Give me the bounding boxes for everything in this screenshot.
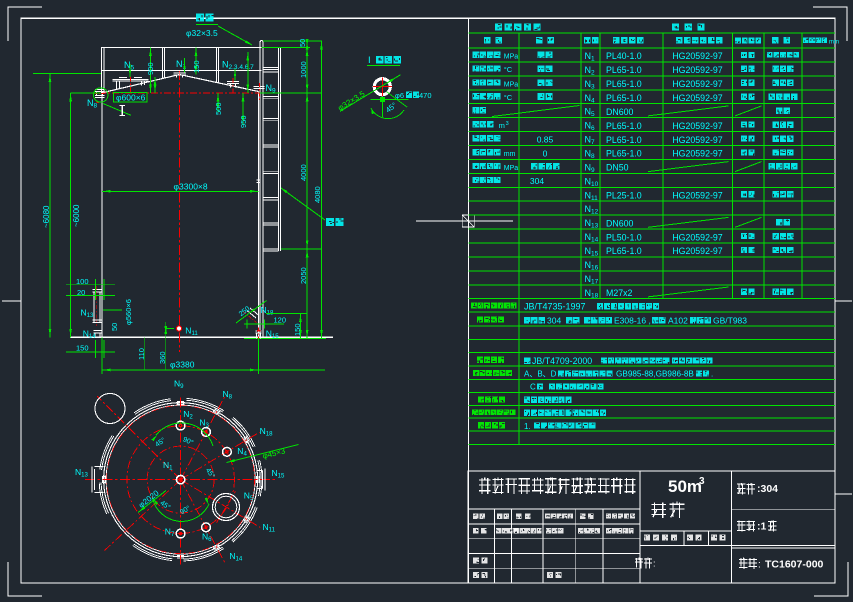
svg-text:3: 3 bbox=[699, 476, 705, 487]
svg-text:50m: 50m bbox=[668, 477, 702, 496]
svg-text:A102: A102 bbox=[668, 316, 688, 326]
svg-text:mm: mm bbox=[504, 151, 516, 158]
svg-text:0.85: 0.85 bbox=[537, 134, 554, 144]
svg-text:HG20592-97: HG20592-97 bbox=[672, 135, 722, 145]
svg-text:mm: mm bbox=[829, 40, 839, 46]
svg-text:4080: 4080 bbox=[313, 186, 322, 203]
svg-text:DN600: DN600 bbox=[606, 107, 633, 117]
svg-text:m: m bbox=[499, 121, 505, 130]
svg-text:110: 110 bbox=[137, 348, 146, 360]
svg-text::1: :1 bbox=[757, 521, 766, 533]
svg-text:4000: 4000 bbox=[299, 164, 308, 181]
svg-text:470: 470 bbox=[419, 91, 432, 100]
svg-text:1000: 1000 bbox=[299, 61, 308, 78]
svg-text:φ32×3.5: φ32×3.5 bbox=[186, 28, 218, 38]
svg-text:GB985-88,GB986-8B: GB985-88,GB986-8B bbox=[616, 370, 694, 379]
svg-text:150: 150 bbox=[293, 323, 302, 336]
svg-text:HG20592-97: HG20592-97 bbox=[672, 246, 722, 256]
svg-text:120: 120 bbox=[274, 316, 287, 325]
svg-text:PL50-1.0: PL50-1.0 bbox=[606, 232, 642, 242]
svg-text::: : bbox=[653, 559, 656, 569]
svg-text:HG20592-97: HG20592-97 bbox=[672, 79, 722, 89]
svg-text:PL65-1.0: PL65-1.0 bbox=[606, 149, 642, 159]
svg-text:100: 100 bbox=[76, 277, 89, 286]
svg-text:PL65-1.0: PL65-1.0 bbox=[606, 65, 642, 75]
svg-text:20: 20 bbox=[77, 288, 85, 297]
svg-text:E308-16 ,: E308-16 , bbox=[614, 316, 651, 326]
svg-text:φ560×6: φ560×6 bbox=[124, 299, 133, 325]
svg-text:PL65-1.0: PL65-1.0 bbox=[606, 135, 642, 145]
svg-text:MPa: MPa bbox=[504, 165, 519, 172]
svg-text:JB/T4709-2000: JB/T4709-2000 bbox=[532, 356, 592, 366]
svg-text:HG20592-97: HG20592-97 bbox=[672, 191, 722, 201]
svg-text:M27x2: M27x2 bbox=[606, 288, 633, 298]
svg-text:HG20592-97: HG20592-97 bbox=[672, 93, 722, 103]
svg-text:GB/T983: GB/T983 bbox=[713, 316, 747, 326]
svg-text:PL25-1.0: PL25-1.0 bbox=[606, 191, 642, 201]
svg-text:HG20592-97: HG20592-97 bbox=[672, 149, 722, 159]
svg-text:DN600: DN600 bbox=[606, 218, 633, 228]
svg-text:150: 150 bbox=[76, 344, 89, 353]
svg-text:304: 304 bbox=[547, 316, 561, 326]
svg-text:PL65-1.0: PL65-1.0 bbox=[606, 79, 642, 89]
svg-text:PL40-1.0: PL40-1.0 bbox=[606, 51, 642, 61]
svg-text:C: C bbox=[530, 383, 536, 392]
svg-text:950: 950 bbox=[239, 115, 248, 128]
svg-text:900: 900 bbox=[146, 62, 155, 75]
svg-text:50: 50 bbox=[298, 39, 307, 47]
svg-text:2050: 2050 bbox=[299, 267, 308, 284]
svg-text:φ600×6: φ600×6 bbox=[116, 93, 146, 103]
svg-text:3: 3 bbox=[506, 121, 509, 127]
svg-text:MPa: MPa bbox=[504, 81, 519, 88]
svg-text:150: 150 bbox=[192, 60, 201, 73]
svg-text:DN50: DN50 bbox=[606, 163, 629, 173]
svg-text:MPa: MPa bbox=[504, 53, 519, 60]
svg-text:PL65-1.0: PL65-1.0 bbox=[606, 93, 642, 103]
svg-text::: : bbox=[758, 560, 761, 571]
svg-text:.: . bbox=[711, 370, 713, 379]
svg-text:I: I bbox=[368, 55, 371, 66]
svg-text:JB/T4735-1997: JB/T4735-1997 bbox=[524, 302, 586, 312]
svg-text:TC1607-000: TC1607-000 bbox=[765, 559, 824, 571]
svg-text::304: :304 bbox=[757, 483, 778, 495]
svg-text:0: 0 bbox=[543, 148, 548, 158]
svg-text:HG20592-97: HG20592-97 bbox=[672, 65, 722, 75]
svg-text:HG20592-97: HG20592-97 bbox=[672, 232, 722, 242]
svg-text:A、B、D: A、B、D bbox=[524, 370, 557, 379]
svg-text:1.: 1. bbox=[524, 422, 531, 431]
svg-text:304: 304 bbox=[530, 176, 544, 186]
svg-text:HG20592-97: HG20592-97 bbox=[672, 121, 722, 131]
svg-text:°C: °C bbox=[504, 65, 513, 74]
svg-text:500: 500 bbox=[214, 102, 223, 115]
svg-text:~6000: ~6000 bbox=[72, 204, 81, 227]
svg-text:~6080: ~6080 bbox=[42, 205, 51, 228]
svg-text:HG20592-97: HG20592-97 bbox=[672, 51, 722, 61]
svg-text:°C: °C bbox=[504, 93, 513, 102]
svg-text:50: 50 bbox=[110, 323, 119, 331]
svg-text:PL65-1.0: PL65-1.0 bbox=[606, 246, 642, 256]
svg-text:φ3380: φ3380 bbox=[170, 359, 195, 369]
svg-text:360: 360 bbox=[158, 351, 167, 364]
svg-text:PL65-1.0: PL65-1.0 bbox=[606, 121, 642, 131]
svg-text:φ3300×8: φ3300×8 bbox=[174, 182, 208, 192]
